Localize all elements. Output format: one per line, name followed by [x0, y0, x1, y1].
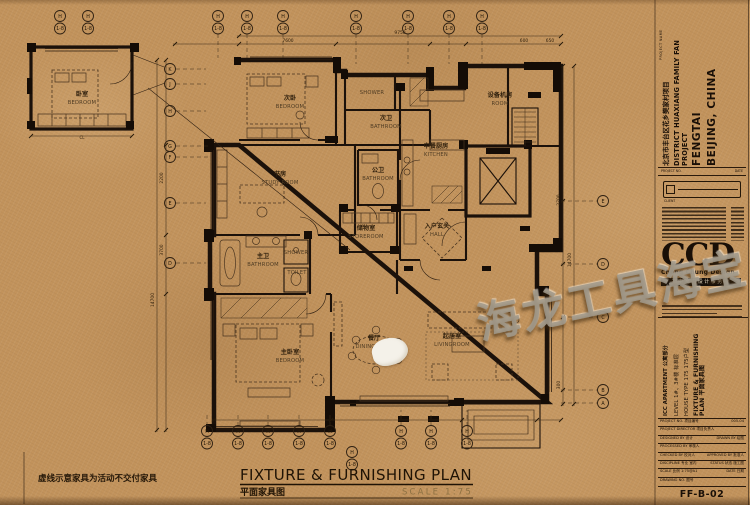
dim-7600: 7600: [282, 38, 293, 44]
table-cell: STATUS 状态 施工图: [710, 462, 744, 467]
svg-text:B: B: [601, 388, 604, 394]
label-living-en: LIVINGROOM: [434, 342, 470, 348]
label-study-zh: 书房: [274, 170, 286, 178]
info-drawing-title: FIXTURE & FURNISHING PLAN 平面家具图: [694, 320, 707, 416]
svg-text:H: H: [245, 14, 249, 20]
table-cell: APPROVED BY 批准人: [707, 454, 744, 459]
label-master-bathroom-zh: 主卫: [257, 252, 270, 260]
svg-text:H: H: [480, 14, 484, 20]
table-cell: DISCIPLINE 专业 室内: [660, 462, 697, 467]
top-edge-shade: [0, 0, 750, 5]
client-logo-icon: [666, 185, 675, 194]
svg-text:1-8: 1-8: [243, 26, 251, 32]
label-guest-bathroom-en: BATHROOM: [362, 176, 394, 182]
svg-text:1-8: 1-8: [264, 441, 272, 447]
table-cell: DRAWING NO. 图号: [660, 479, 693, 484]
label-kitchen-zh: 中餐厨房: [424, 142, 449, 150]
project-city: FENGTAI: [691, 28, 703, 166]
dim-14700: 14700: [150, 293, 156, 307]
svg-text:H: H: [350, 450, 354, 456]
svg-text:H: H: [354, 14, 358, 20]
dim-2200: 2200: [159, 172, 165, 183]
dim-14700-right: 14700: [567, 253, 573, 267]
floor-plan-drawing: 7600 9750 600 650 2200 3700 14700 2700 1…: [0, 0, 750, 505]
info-level: LEVEL 1#、3#楼 标准层: [673, 320, 680, 416]
title-block-table: PROJECT NO. 项目编号005-04 PROJECT DIRECTOR …: [658, 418, 746, 485]
svg-text:J: J: [168, 82, 170, 88]
label-guest-bathroom-zh: 公卫: [372, 167, 385, 174]
project-name-zh: 北京市丰台区花乡樊家村项目: [660, 28, 670, 166]
svg-text:F: F: [169, 155, 172, 161]
svg-text:1-8: 1-8: [427, 441, 435, 447]
label-shower-room: SHOWER: [360, 90, 385, 96]
label-master-bathroom-en: BATHROOM: [247, 262, 279, 268]
label-secondary-bathroom-zh: 次卫: [380, 114, 393, 122]
label-secondary-bedroom-zh: 次卧: [284, 94, 297, 102]
svg-text:H: H: [281, 14, 285, 20]
svg-text:H: H: [328, 429, 332, 435]
svg-text:1-8: 1-8: [404, 26, 412, 32]
table-cell: 005-04: [731, 420, 744, 425]
table-cell: CHECKED BY 校对人: [660, 454, 695, 459]
svg-text:H: H: [447, 14, 451, 20]
label-storage-zh: 储物室: [356, 224, 376, 232]
divider: [658, 317, 748, 318]
client-label: CLIENT: [664, 199, 675, 203]
drawing-info-block: ICC APARTMENT 公寓部分 LEVEL 1#、3#楼 标准层 HOUS…: [662, 320, 746, 416]
dim-300: 300: [556, 381, 562, 390]
label-secondary-bathroom-en: BATHROOM: [370, 124, 402, 130]
svg-text:D: D: [168, 261, 172, 267]
table-cell: PROJECT DIRECTOR 项目负责人: [660, 428, 714, 433]
table-cell: DRAWN BY 绘图: [716, 437, 744, 442]
svg-text:1-8: 1-8: [326, 441, 334, 447]
svg-text:1-8: 1-8: [234, 441, 242, 447]
label-equipment-zh: 设备机房: [488, 91, 513, 99]
label-detached-bedroom-zh: 卧室: [76, 90, 88, 98]
project-no-label: PROJECT NO.: [661, 169, 682, 174]
svg-text:1-8: 1-8: [279, 26, 287, 32]
label-living-zh: 起居室: [442, 332, 462, 340]
svg-text:1-8: 1-8: [445, 26, 453, 32]
svg-text:H: H: [399, 429, 403, 435]
svg-text:1-8: 1-8: [463, 441, 471, 447]
drawing-number: FF-B-02: [658, 486, 746, 500]
table-cell: SCALE 比例 1:75@A1: [660, 470, 697, 475]
svg-text:1-8: 1-8: [397, 441, 405, 447]
furniture-note: 虚线示意家具为活动不交付家具: [38, 473, 158, 484]
dim-2700: 2700: [556, 194, 562, 205]
label-hall-en: HALL: [430, 232, 444, 238]
date-label: DATE: [735, 169, 743, 174]
leader-lines: [133, 55, 350, 250]
svg-text:H: H: [168, 109, 172, 115]
label-hall-zh: 入户玄关: [424, 222, 451, 230]
svg-text:H: H: [58, 14, 62, 20]
table-cell: DATE 日期: [726, 470, 744, 475]
svg-text:1-8: 1-8: [352, 26, 360, 32]
grid-bubbles-top: H1-8 H1-8 H1-8 H1-8 H1-8 H1-8 H1-8 H1-8 …: [55, 11, 488, 35]
svg-text:H: H: [266, 429, 270, 435]
elevator-shaft: [466, 146, 530, 216]
svg-text:H: H: [406, 14, 410, 20]
detached-bedroom-unit: [31, 47, 132, 129]
label-master-shower: SHOWER: [284, 250, 309, 256]
label-detached-bedroom-en: BEDROOM: [68, 100, 96, 106]
project-no-date-row: PROJECT NO. DATE: [658, 167, 746, 176]
svg-text:K: K: [168, 67, 172, 73]
svg-text:H: H: [429, 429, 433, 435]
info-house-type: HOUSE TYPE 175 175户型: [683, 320, 690, 416]
svg-text:1-8: 1-8: [295, 441, 303, 447]
svg-text:H: H: [236, 429, 240, 435]
table-cell: PROCESSED BY 审核人: [660, 445, 699, 450]
project-country: BEIJING, CHINA: [706, 28, 718, 166]
label-kitchen-en: KITCHEN: [424, 152, 448, 158]
svg-text:1-8: 1-8: [203, 441, 211, 447]
dim-3700: 3700: [159, 244, 165, 255]
centerline-label: CL: [79, 135, 85, 140]
label-storage-en: STOREROOM: [348, 234, 383, 240]
terrace-steps: [462, 404, 540, 448]
info-apartment: ICC APARTMENT 公寓部分: [662, 320, 669, 416]
label-toilet: TOILET: [286, 270, 307, 276]
svg-text:H: H: [86, 14, 90, 20]
label-secondary-bedroom-en: BEDROOM: [276, 104, 304, 110]
client-signature-line: [678, 189, 738, 190]
table-cell: PROJECT NO. 项目编号: [660, 420, 699, 425]
svg-text:H: H: [216, 14, 220, 20]
dim-650: 650: [546, 38, 555, 44]
project-name-en: DISTRICT HUAXIANG FAMILY FAN PROJECT: [673, 28, 689, 166]
label-equipment-en: ROOM: [491, 101, 508, 107]
bottom-edge-shade: [0, 496, 750, 505]
table-cell: DESIGNED BY 设计: [660, 437, 693, 442]
plan-title-en: FIXTURE & FURNISHING PLAN: [240, 466, 472, 484]
client-box: [663, 181, 741, 198]
svg-text:1-8: 1-8: [478, 26, 486, 32]
label-master-bedroom-en: BEDROOM: [276, 358, 304, 364]
svg-text:H: H: [465, 429, 469, 435]
plan-title: FIXTURE & FURNISHING PLAN 平面家具图 SCALE 1:…: [240, 466, 473, 498]
svg-text:E: E: [168, 201, 171, 207]
svg-text:A: A: [601, 401, 605, 407]
project-name-block: 北京市丰台区花乡樊家村项目 DISTRICT HUAXIANG FAMILY F…: [660, 28, 746, 166]
svg-text:1-8: 1-8: [56, 26, 64, 32]
svg-text:E: E: [601, 199, 604, 205]
label-master-bedroom-zh: 主卧室: [281, 348, 300, 356]
svg-text:H: H: [297, 429, 301, 435]
svg-text:1-8: 1-8: [84, 26, 92, 32]
label-study-en: STUDY ROOM: [261, 180, 298, 186]
dim-600: 600: [520, 38, 529, 44]
svg-text:G: G: [168, 144, 172, 150]
room-labels: 卧室 BEDROOM 次卧 BEDROOM SHOWER 次卫 BATHROOM…: [68, 90, 513, 364]
svg-text:1-8: 1-8: [214, 26, 222, 32]
dimension-lines: 7600 9750 600 650 2200 3700 14700 2700 1…: [29, 30, 576, 432]
windows: [211, 57, 552, 429]
svg-text:H: H: [205, 429, 209, 435]
